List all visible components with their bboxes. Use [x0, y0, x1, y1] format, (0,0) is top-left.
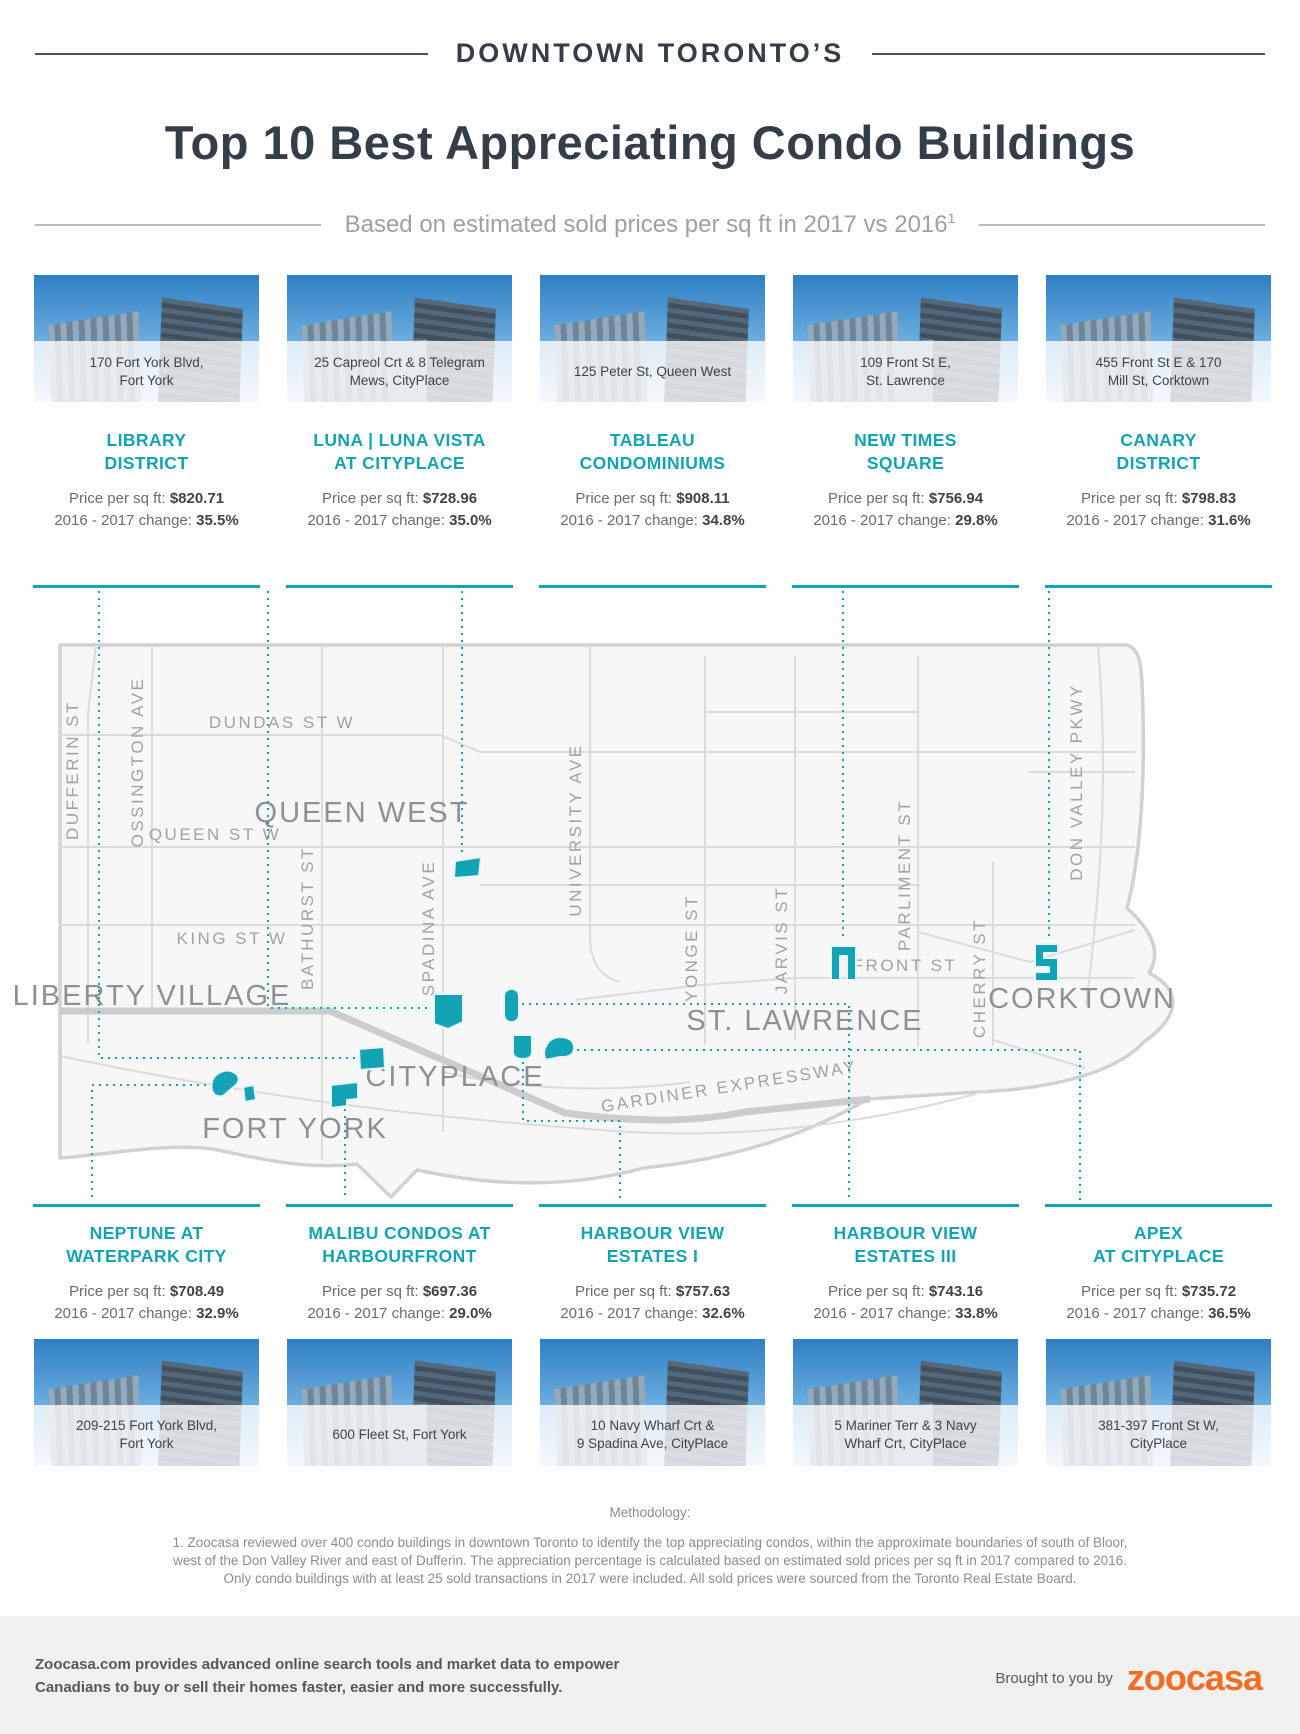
photo-caption: 109 Front St E, St. Lawrence: [793, 341, 1018, 402]
change-label: 2016 - 2017 change:: [813, 512, 951, 529]
street-label-dundas: DUNDAS ST W: [209, 713, 355, 732]
card-library-district: 170 Fort York Blvd, Fort York LIBRARY DI…: [20, 275, 273, 588]
condo-stats: Price per sq ft: $735.72 2016 - 2017 cha…: [1032, 1281, 1285, 1326]
condo-stats: Price per sq ft: $728.96 2016 - 2017 cha…: [273, 488, 526, 533]
subtitle-row: Based on estimated sold prices per sq ft…: [0, 210, 1300, 239]
building-photo: 10 Navy Wharf Crt & 9 Spadina Ave, CityP…: [540, 1339, 765, 1466]
price-value: $798.83: [1182, 490, 1236, 507]
condo-name: APEX AT CITYPLACE: [1032, 1222, 1285, 1268]
header: DOWNTOWN TORONTO’S Top 10 Best Appreciat…: [0, 38, 1300, 239]
footer-blurb: Zoocasa.com provides advanced online sea…: [35, 1654, 619, 1699]
street-label-don-valley-pkwy: DON VALLEY PKWY: [1067, 683, 1086, 880]
methodology-heading: Methodology:: [0, 1505, 1300, 1520]
subtitle-line-left: [35, 224, 321, 226]
price-label: Price per sq ft:: [69, 490, 166, 507]
building-photo: 381-397 Front St W, CityPlace: [1046, 1339, 1271, 1466]
condo-stats: Price per sq ft: $798.83 2016 - 2017 cha…: [1032, 488, 1285, 533]
change-label: 2016 - 2017 change:: [307, 512, 445, 529]
photo-caption: 10 Navy Wharf Crt & 9 Spadina Ave, CityP…: [540, 1405, 765, 1466]
subtitle: Based on estimated sold prices per sq ft…: [345, 210, 956, 239]
card-harbour-view-iii: HARBOUR VIEW ESTATES III Price per sq ft…: [779, 1204, 1032, 1460]
price-label: Price per sq ft:: [575, 490, 672, 507]
street-label-university: UNIVERSITY AVE: [566, 743, 585, 916]
map-marker-luna: [434, 994, 463, 1029]
photo-caption: 455 Front St E & 170 Mill St, Corktown: [1046, 341, 1271, 402]
card-rule: [286, 1204, 513, 1207]
kicker-line-left: [35, 53, 428, 55]
condo-stats: Price per sq ft: $908.11 2016 - 2017 cha…: [526, 488, 779, 533]
map-marker-harbour-view-iii: [504, 989, 519, 1022]
condo-stats: Price per sq ft: $756.94 2016 - 2017 cha…: [779, 488, 1032, 533]
street-label-king: KING ST W: [177, 929, 288, 948]
price-value: $820.71: [170, 490, 224, 507]
top-cards-row: 170 Fort York Blvd, Fort York LIBRARY DI…: [20, 275, 1285, 588]
price-label: Price per sq ft:: [575, 1283, 672, 1300]
price-value: $728.96: [423, 490, 477, 507]
zoocasa-logo: zoocasa: [1127, 1660, 1262, 1696]
building-photo: 109 Front St E, St. Lawrence: [793, 275, 1018, 402]
price-label: Price per sq ft:: [322, 490, 419, 507]
price-label: Price per sq ft:: [828, 1283, 925, 1300]
street-label-jarvis: JARVIS ST: [772, 886, 791, 994]
map-marker-tableau: [454, 857, 481, 878]
change-value: 34.8%: [702, 512, 745, 529]
neighbourhood-fort-york: FORT YORK: [202, 1113, 388, 1145]
condo-name: HARBOUR VIEW ESTATES III: [779, 1222, 1032, 1268]
price-label: Price per sq ft:: [828, 490, 925, 507]
price-value: $697.36: [423, 1283, 477, 1300]
change-value: 35.5%: [196, 512, 239, 529]
change-label: 2016 - 2017 change:: [307, 1305, 445, 1322]
photo-caption: 170 Fort York Blvd, Fort York: [34, 341, 259, 402]
card-rule: [792, 1204, 1019, 1207]
price-label: Price per sq ft:: [69, 1283, 166, 1300]
card-malibu: MALIBU CONDOS AT HARBOURFRONT Price per …: [273, 1204, 526, 1460]
neighbourhood-liberty-village: LIBERTY VILLAGE: [13, 980, 292, 1012]
building-photo: 209-215 Fort York Blvd, Fort York: [34, 1339, 259, 1466]
street-label-spadina: SPADINA AVE: [419, 860, 438, 996]
neighbourhood-st-lawrence: ST. LAWRENCE: [686, 1005, 923, 1037]
footer-brand: Brought to you by zoocasa: [995, 1660, 1262, 1696]
photo-caption: 5 Mariner Terr & 3 Navy Wharf Crt, CityP…: [793, 1405, 1018, 1466]
change-value: 32.6%: [702, 1305, 745, 1322]
photo-caption: 25 Capreol Crt & 8 Telegram Mews, CityPl…: [287, 341, 512, 402]
card-rule: [33, 1204, 260, 1207]
photo-caption: 381-397 Front St W, CityPlace: [1046, 1405, 1271, 1466]
methodology-text: 1. Zoocasa reviewed over 400 condo build…: [50, 1534, 1250, 1587]
building-photo: 455 Front St E & 170 Mill St, Corktown: [1046, 275, 1271, 402]
condo-name: NEPTUNE AT WATERPARK CITY: [20, 1222, 273, 1268]
change-label: 2016 - 2017 change:: [560, 1305, 698, 1322]
price-label: Price per sq ft:: [1081, 490, 1178, 507]
brought-by-label: Brought to you by: [995, 1670, 1113, 1687]
downtown-toronto-map: DUFFERIN ST OSSINGTON AVE BATHURST ST SP…: [0, 560, 1300, 1210]
street-label-cherry: CHERRY ST: [970, 918, 989, 1038]
change-value: 29.0%: [449, 1305, 492, 1322]
change-label: 2016 - 2017 change:: [54, 512, 192, 529]
street-label-front: FRONT ST: [853, 956, 958, 975]
condo-stats: Price per sq ft: $820.71 2016 - 2017 cha…: [20, 488, 273, 533]
card-luna: 25 Capreol Crt & 8 Telegram Mews, CityPl…: [273, 275, 526, 588]
street-label-ossington: OSSINGTON AVE: [128, 677, 147, 848]
condo-stats: Price per sq ft: $757.63 2016 - 2017 cha…: [526, 1281, 779, 1326]
neighbourhood-queen-west: QUEEN WEST: [255, 797, 470, 829]
condo-name: MALIBU CONDOS AT HARBOURFRONT: [273, 1222, 526, 1268]
condo-name: NEW TIMES SQUARE: [779, 429, 1032, 475]
bottom-cards-row: NEPTUNE AT WATERPARK CITY Price per sq f…: [20, 1204, 1285, 1460]
building-photo: 170 Fort York Blvd, Fort York: [34, 275, 259, 402]
change-value: 32.9%: [196, 1305, 239, 1322]
change-label: 2016 - 2017 change:: [1066, 512, 1204, 529]
condo-stats: Price per sq ft: $708.49 2016 - 2017 cha…: [20, 1281, 273, 1326]
card-apex: APEX AT CITYPLACE Price per sq ft: $735.…: [1032, 1204, 1285, 1460]
change-label: 2016 - 2017 change:: [560, 512, 698, 529]
kicker: DOWNTOWN TORONTO’S: [456, 38, 845, 69]
street-label-parliment: PARLIMENT ST: [895, 799, 914, 951]
change-value: 36.5%: [1208, 1305, 1251, 1322]
card-new-times-square: 109 Front St E, St. Lawrence NEW TIMES S…: [779, 275, 1032, 588]
subtitle-line-right: [979, 224, 1265, 226]
building-photo: 125 Peter St, Queen West: [540, 275, 765, 402]
condo-name: LUNA | LUNA VISTA AT CITYPLACE: [273, 429, 526, 475]
building-photo: 25 Capreol Crt & 8 Telegram Mews, CityPl…: [287, 275, 512, 402]
change-value: 35.0%: [449, 512, 492, 529]
street-label-dufferin: DUFFERIN ST: [63, 700, 82, 840]
condo-stats: Price per sq ft: $743.16 2016 - 2017 cha…: [779, 1281, 1032, 1326]
map-marker-harbour-view-i: [513, 1035, 532, 1059]
card-tableau: 125 Peter St, Queen West TABLEAU CONDOMI…: [526, 275, 779, 588]
photo-caption: 125 Peter St, Queen West: [540, 341, 765, 402]
neighbourhood-cityplace: CITYPLACE: [365, 1061, 544, 1093]
street-label-yonge: YONGE ST: [682, 894, 701, 1002]
methodology-section: Methodology: 1. Zoocasa reviewed over 40…: [0, 1505, 1300, 1587]
building-photo: 600 Fleet St, Fort York: [287, 1339, 512, 1466]
photo-caption: 209-215 Fort York Blvd, Fort York: [34, 1405, 259, 1466]
change-label: 2016 - 2017 change:: [54, 1305, 192, 1322]
infographic-page: DOWNTOWN TORONTO’S Top 10 Best Appreciat…: [0, 0, 1300, 1734]
condo-name: HARBOUR VIEW ESTATES I: [526, 1222, 779, 1268]
change-label: 2016 - 2017 change:: [1066, 1305, 1204, 1322]
price-value: $743.16: [929, 1283, 983, 1300]
change-value: 33.8%: [955, 1305, 998, 1322]
footer: Zoocasa.com provides advanced online sea…: [0, 1616, 1300, 1734]
price-value: $757.63: [676, 1283, 730, 1300]
price-value: $908.11: [676, 490, 729, 507]
street-label-bathurst: BATHURST ST: [298, 846, 317, 990]
condo-name: CANARY DISTRICT: [1032, 429, 1285, 475]
kicker-row: DOWNTOWN TORONTO’S: [0, 38, 1300, 69]
price-label: Price per sq ft:: [322, 1283, 419, 1300]
subtitle-text: Based on estimated sold prices per sq ft…: [345, 211, 948, 238]
change-label: 2016 - 2017 change:: [813, 1305, 951, 1322]
building-photo: 5 Mariner Terr & 3 Navy Wharf Crt, CityP…: [793, 1339, 1018, 1466]
condo-stats: Price per sq ft: $697.36 2016 - 2017 cha…: [273, 1281, 526, 1326]
kicker-line-right: [872, 53, 1265, 55]
price-value: $756.94: [929, 490, 983, 507]
photo-caption: 600 Fleet St, Fort York: [287, 1405, 512, 1466]
card-rule: [539, 1204, 766, 1207]
map-marker-canary-district: [1035, 944, 1058, 981]
price-label: Price per sq ft:: [1081, 1283, 1178, 1300]
page-title: Top 10 Best Appreciating Condo Buildings: [0, 115, 1300, 170]
map-marker-library-district: [359, 1047, 385, 1070]
price-value: $735.72: [1182, 1283, 1236, 1300]
card-neptune: NEPTUNE AT WATERPARK CITY Price per sq f…: [20, 1204, 273, 1460]
card-rule: [1045, 1204, 1272, 1207]
card-harbour-view-i: HARBOUR VIEW ESTATES I Price per sq ft: …: [526, 1204, 779, 1460]
condo-name: TABLEAU CONDOMINIUMS: [526, 429, 779, 475]
condo-name: LIBRARY DISTRICT: [20, 429, 273, 475]
price-value: $708.49: [170, 1283, 224, 1300]
card-canary-district: 455 Front St E & 170 Mill St, Corktown C…: [1032, 275, 1285, 588]
neighbourhood-corktown: CORKTOWN: [988, 983, 1176, 1015]
change-value: 31.6%: [1208, 512, 1251, 529]
change-value: 29.8%: [955, 512, 998, 529]
map-marker-neptune-b: [243, 1085, 256, 1102]
footnote-mark: 1: [948, 210, 956, 226]
